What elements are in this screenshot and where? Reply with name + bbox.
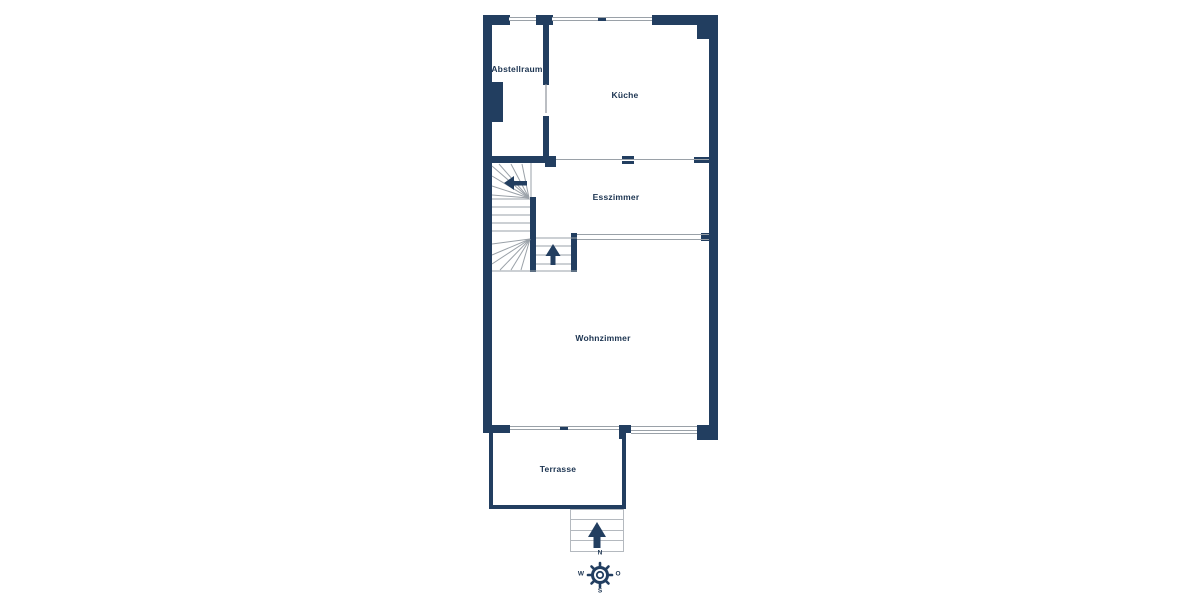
compass-west-label: W xyxy=(578,571,584,578)
compass-east-label: O xyxy=(615,571,620,578)
room-label-wohnzimmer: Wohnzimmer xyxy=(575,333,630,343)
room-label-kueche: Küche xyxy=(612,90,639,100)
stair-upper-treads xyxy=(492,199,530,231)
compass-rose-icon xyxy=(588,563,612,587)
terrace-steps-arrow-up-icon xyxy=(588,522,606,548)
stair-bottom-winder xyxy=(492,239,530,270)
floor-plan: Abstellraum Küche Esszimmer Wohnzimmer T… xyxy=(0,0,1200,600)
plan-linework xyxy=(0,0,1200,600)
compass-north-label: N xyxy=(598,550,603,557)
room-label-abstellraum: Abstellraum xyxy=(491,64,542,74)
room-label-esszimmer: Esszimmer xyxy=(593,192,640,202)
compass-south-label: S xyxy=(598,588,602,595)
arrow-up-icon xyxy=(546,244,561,265)
room-label-terrasse: Terrasse xyxy=(540,464,576,474)
